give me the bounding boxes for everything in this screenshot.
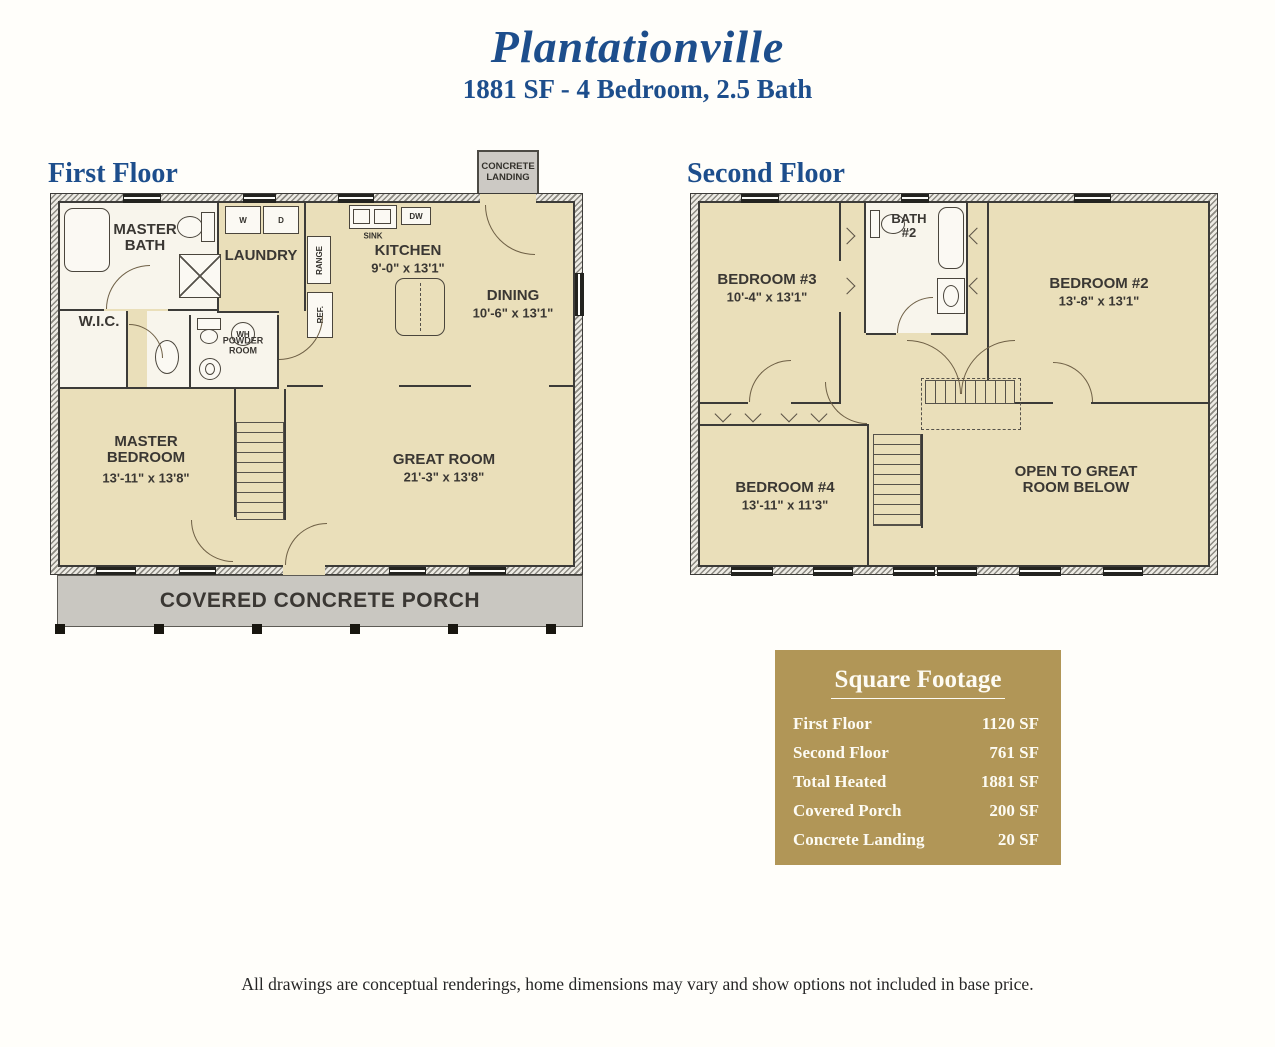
square-footage-rows: First Floor 1120 SF Second Floor 761 SF … <box>793 714 1039 859</box>
vanity-icon <box>937 278 965 314</box>
wall <box>217 311 279 313</box>
wall <box>126 311 128 387</box>
round-toilet-icon <box>199 358 221 380</box>
window <box>741 194 779 203</box>
sf-row-label: Total Heated <box>793 772 886 792</box>
sf-row-value: 1120 SF <box>982 714 1039 734</box>
porch-post <box>55 624 65 634</box>
porch-post <box>350 624 360 634</box>
range-label: RANGE <box>315 246 324 275</box>
window <box>338 194 374 203</box>
room-label-laundry: LAUNDRY <box>225 248 298 264</box>
concrete-landing: CONCRETE LANDING <box>477 150 539 195</box>
dryer-label: D <box>278 216 284 225</box>
wall <box>189 315 191 387</box>
island-dash-line <box>420 283 421 331</box>
sf-row-value: 1881 SF <box>981 772 1039 792</box>
floor-plan-page: { "header": { "title": "Plantationville"… <box>0 0 1275 1047</box>
kitchen-island-icon <box>395 278 445 336</box>
kitchen-sink-icon <box>349 205 397 229</box>
disclaimer: All drawings are conceptual renderings, … <box>0 974 1275 995</box>
sf-row: Concrete Landing 20 SF <box>793 830 1039 850</box>
sf-row-value: 200 SF <box>989 801 1039 821</box>
door-opening <box>480 194 536 205</box>
room-label-bedroom2: BEDROOM #2 <box>1049 276 1148 292</box>
square-footage-panel: Square Footage First Floor 1120 SF Secon… <box>775 650 1061 865</box>
room-label-great-room: GREAT ROOM <box>393 452 495 468</box>
window <box>575 273 584 316</box>
room-label-master-bath: MASTER BATH <box>100 222 190 254</box>
sf-row: Second Floor 761 SF <box>793 743 1039 763</box>
porch-post <box>546 624 556 634</box>
sf-row: First Floor 1120 SF <box>793 714 1039 734</box>
room-dims-bedroom3: 10'-4" x 13'1" <box>727 290 808 305</box>
second-floor-label: Second Floor <box>687 158 845 190</box>
window <box>901 194 929 203</box>
concrete-landing-label: CONCRETE LANDING <box>479 162 537 184</box>
covered-porch: COVERED CONCRETE PORCH <box>57 575 583 627</box>
porch-post <box>252 624 262 634</box>
sf-row-label: Covered Porch <box>793 801 901 821</box>
dishwasher-icon: DW <box>401 207 431 225</box>
wall <box>287 385 323 387</box>
square-footage-title: Square Footage <box>831 666 1006 699</box>
room-label-powder: POWDER ROOM <box>212 336 274 355</box>
window <box>1103 567 1143 576</box>
stairs <box>236 422 284 520</box>
wall <box>864 203 866 333</box>
sink-label: SINK <box>363 232 382 241</box>
wall <box>399 385 471 387</box>
wall <box>931 333 968 335</box>
dryer-icon: D <box>263 206 299 234</box>
window <box>1074 194 1111 203</box>
wall <box>60 309 104 311</box>
sf-row: Covered Porch 200 SF <box>793 801 1039 821</box>
wall <box>921 434 923 528</box>
floor-plan-first: WH W D SINK DW RANGE REF. MASTER BAT <box>50 193 583 575</box>
shower-icon <box>179 254 221 298</box>
wall <box>867 424 869 567</box>
room-label-dining: DINING <box>487 288 540 304</box>
porch-post <box>448 624 458 634</box>
wall <box>304 203 306 311</box>
room-label-open-below: OPEN TO GREAT ROOM BELOW <box>1006 464 1146 496</box>
wall <box>1091 402 1210 404</box>
room-dims-great-room: 21'-3" x 13'8" <box>404 470 485 485</box>
room-dims-kitchen: 9'-0" x 13'1" <box>371 261 444 276</box>
wall <box>168 309 219 311</box>
room-label-bedroom3: BEDROOM #3 <box>717 272 816 288</box>
washer-icon: W <box>225 206 261 234</box>
window <box>1019 567 1061 576</box>
window <box>123 194 161 203</box>
wall <box>966 203 968 333</box>
window <box>893 567 935 576</box>
porch-label: COVERED CONCRETE PORCH <box>160 589 480 613</box>
sink-basin-icon <box>374 209 391 224</box>
sf-row-value: 20 SF <box>998 830 1039 850</box>
washer-label: W <box>239 216 247 225</box>
wall <box>700 402 748 404</box>
floor-plan-second: BEDROOM #3 10'-4" x 13'1" BATH #2 BEDROO… <box>690 193 1218 575</box>
bathtub-icon <box>938 207 964 269</box>
porch-post <box>154 624 164 634</box>
wall <box>866 333 896 335</box>
room-dims-bedroom4: 13'-11" x 11'3" <box>742 498 828 513</box>
vanity-sink-icon <box>943 285 959 307</box>
room-label-bedroom4: BEDROOM #4 <box>735 480 834 496</box>
dishwasher-label: DW <box>409 212 422 221</box>
wall <box>60 387 279 389</box>
range-icon: RANGE <box>307 236 331 284</box>
wall <box>549 385 575 387</box>
toilet-tank-icon <box>870 210 880 238</box>
page-subtitle: 1881 SF - 4 Bedroom, 2.5 Bath <box>0 74 1275 105</box>
toilet-tank-icon <box>201 212 215 242</box>
sf-row-label: Concrete Landing <box>793 830 924 850</box>
wall <box>700 424 868 426</box>
window <box>731 567 773 576</box>
room-dims-dining: 10'-6" x 13'1" <box>473 306 554 321</box>
room-dims-bedroom2: 13'-8" x 13'1" <box>1059 294 1140 309</box>
page-title: Plantationville <box>0 20 1275 73</box>
first-floor-label: First Floor <box>48 158 178 190</box>
window <box>813 567 853 576</box>
sf-row-label: Second Floor <box>793 743 889 763</box>
round-toilet-inner <box>205 363 215 375</box>
window <box>937 567 977 576</box>
room-label-wic: W.I.C. <box>79 314 120 330</box>
sf-row-value: 761 SF <box>989 743 1039 763</box>
room-label-bath2: BATH #2 <box>884 212 934 240</box>
wall <box>284 389 286 520</box>
stairs <box>873 434 921 526</box>
square-footage-title-wrap: Square Footage <box>775 666 1061 699</box>
room-label-kitchen: KITCHEN <box>375 243 442 259</box>
sf-row-label: First Floor <box>793 714 872 734</box>
room-label-master-bedroom: MASTER BEDROOM <box>96 434 196 466</box>
sf-row: Total Heated 1881 SF <box>793 772 1039 792</box>
window <box>243 194 276 203</box>
sink-basin-icon <box>353 209 370 224</box>
room-dims-master-bedroom: 13'-11" x 13'8" <box>102 471 189 486</box>
